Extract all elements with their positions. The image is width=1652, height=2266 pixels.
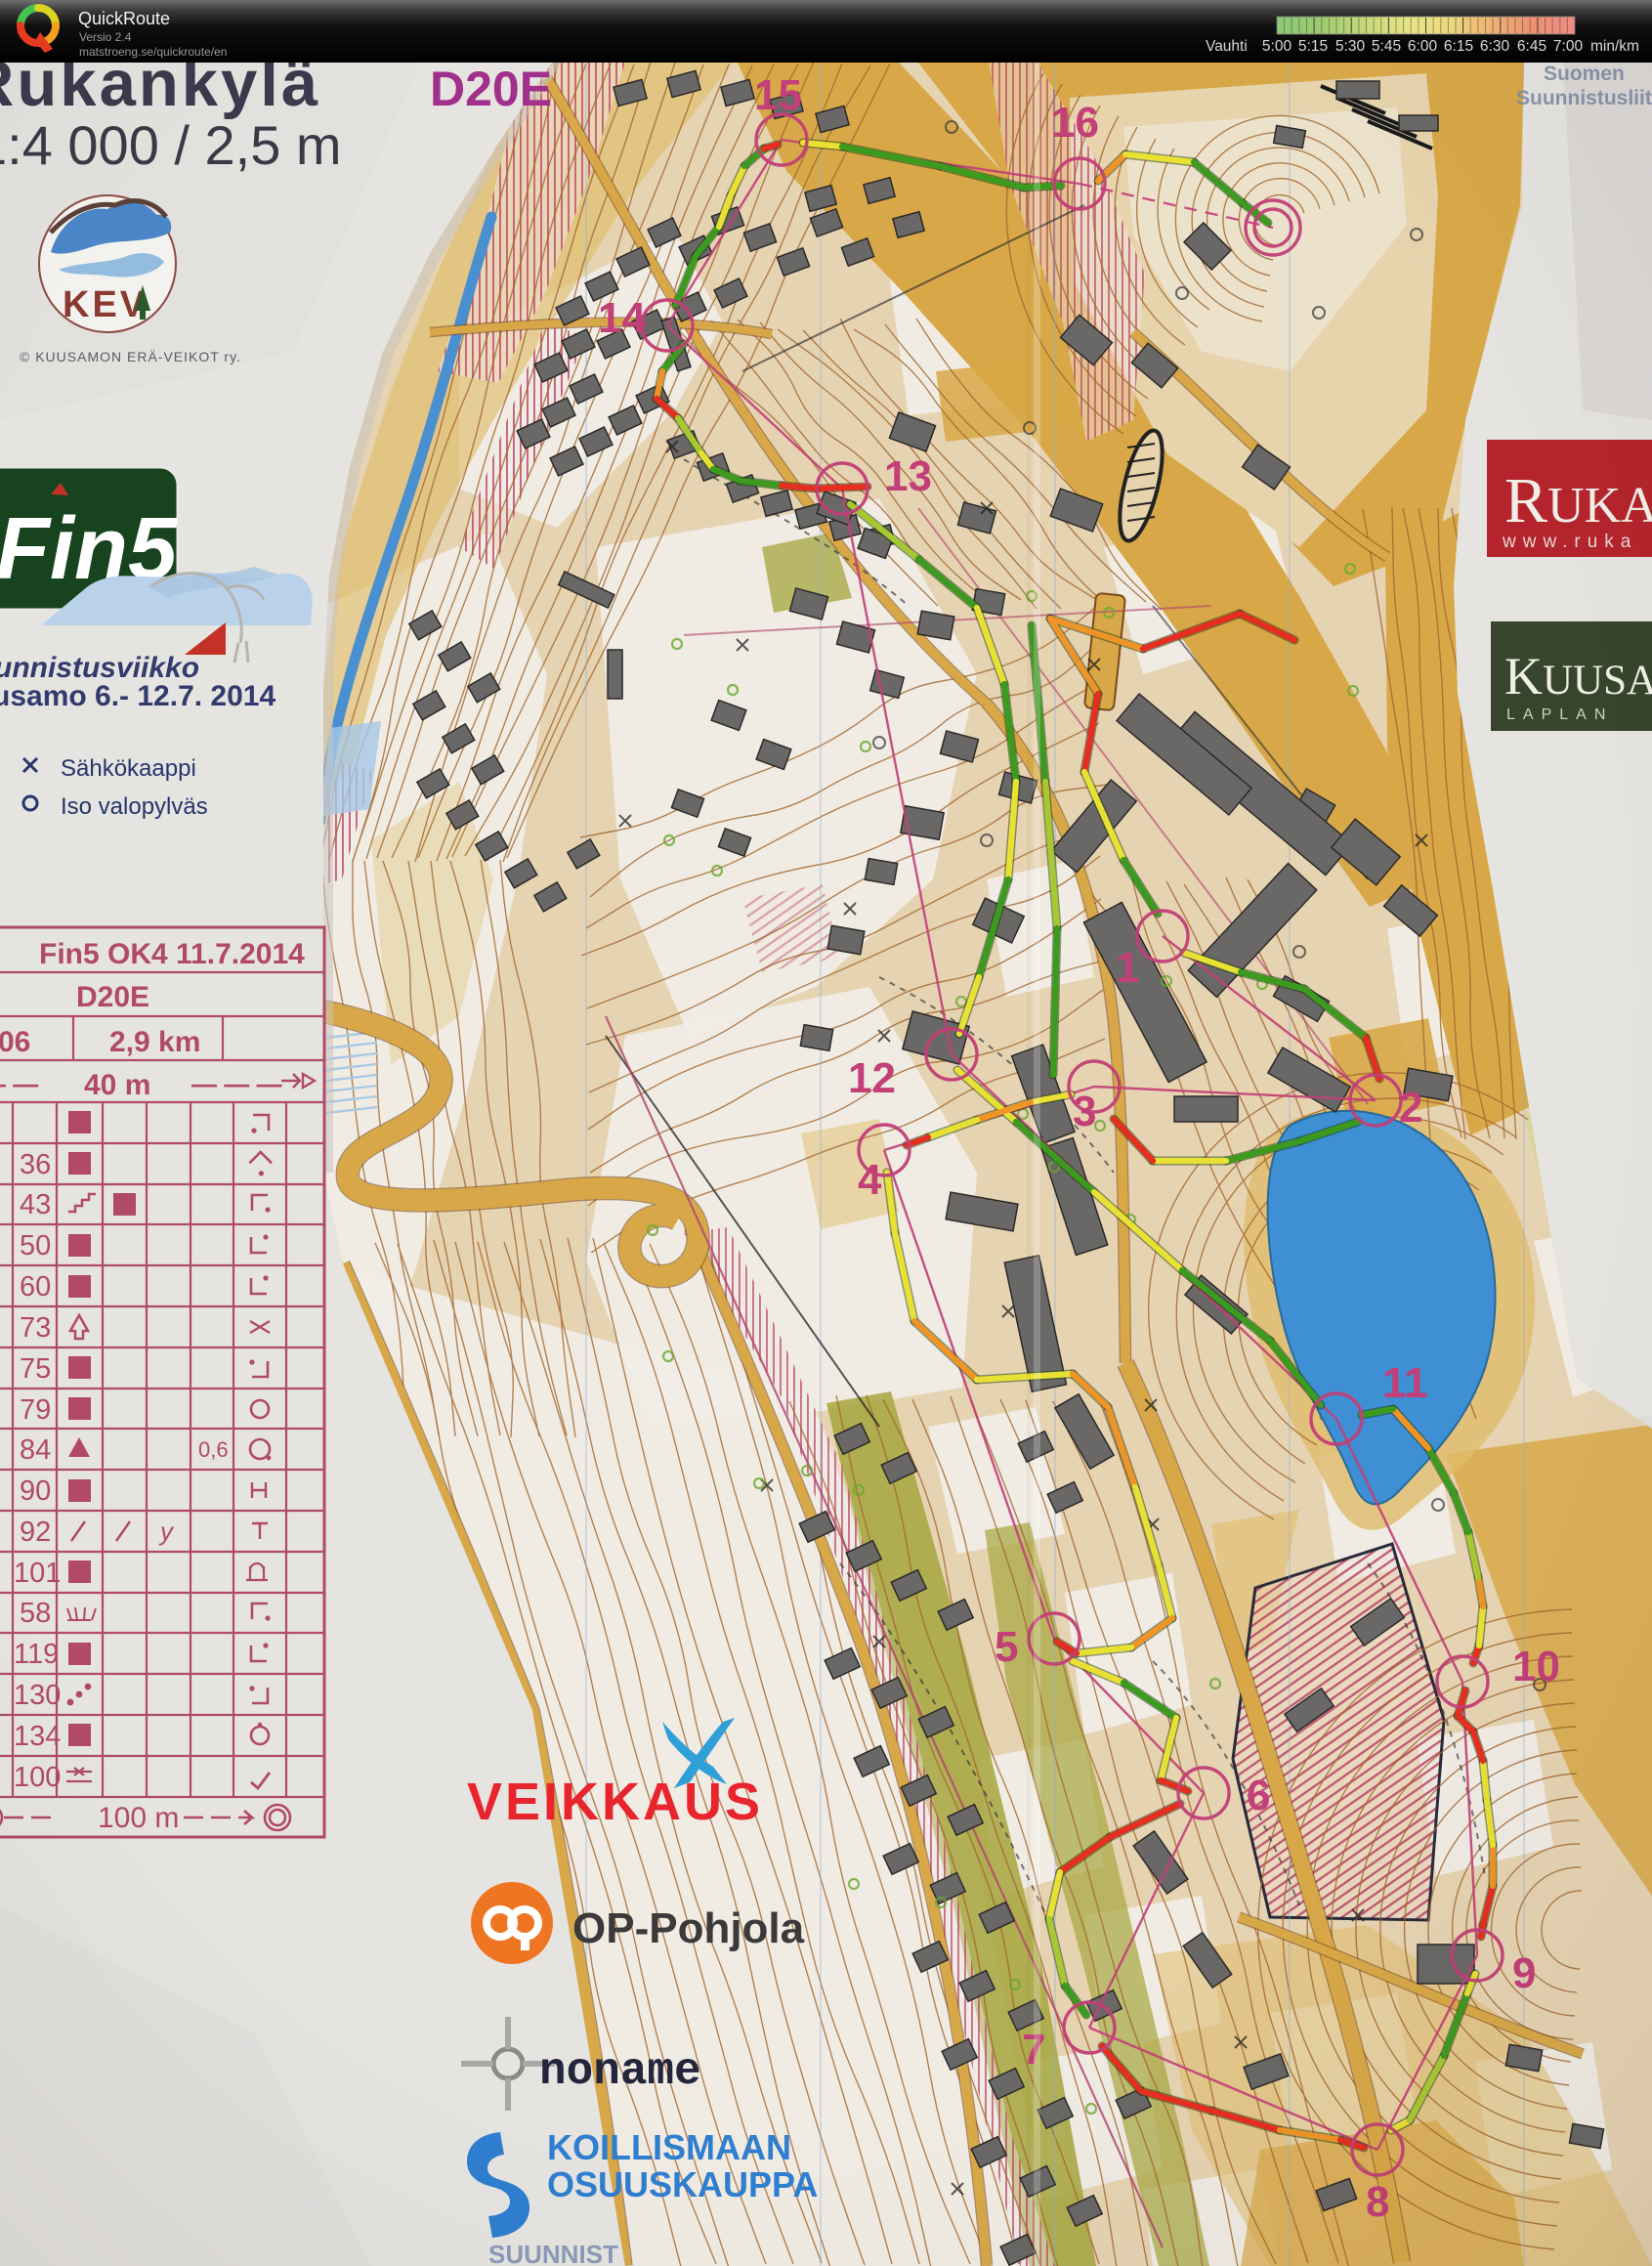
svg-text:matstroeng.se/quickroute/en: matstroeng.se/quickroute/en <box>79 45 227 59</box>
svg-text:7:00: 7:00 <box>1553 38 1584 55</box>
svg-text:6:15: 6:15 <box>1444 38 1473 55</box>
svg-text:min/km: min/km <box>1590 38 1639 55</box>
svg-text:Vauhti: Vauhti <box>1206 38 1248 55</box>
svg-text:5:30: 5:30 <box>1335 38 1366 55</box>
svg-text:5:45: 5:45 <box>1372 38 1401 55</box>
svg-text:QuickRoute: QuickRoute <box>78 9 170 28</box>
svg-text:5:15: 5:15 <box>1298 38 1328 55</box>
svg-text:6:30: 6:30 <box>1480 38 1510 55</box>
svg-text:5:00: 5:00 <box>1262 38 1292 55</box>
svg-text:6:45: 6:45 <box>1517 38 1546 55</box>
svg-text:6:00: 6:00 <box>1408 38 1438 55</box>
svg-text:Versio 2.4: Versio 2.4 <box>79 30 132 44</box>
